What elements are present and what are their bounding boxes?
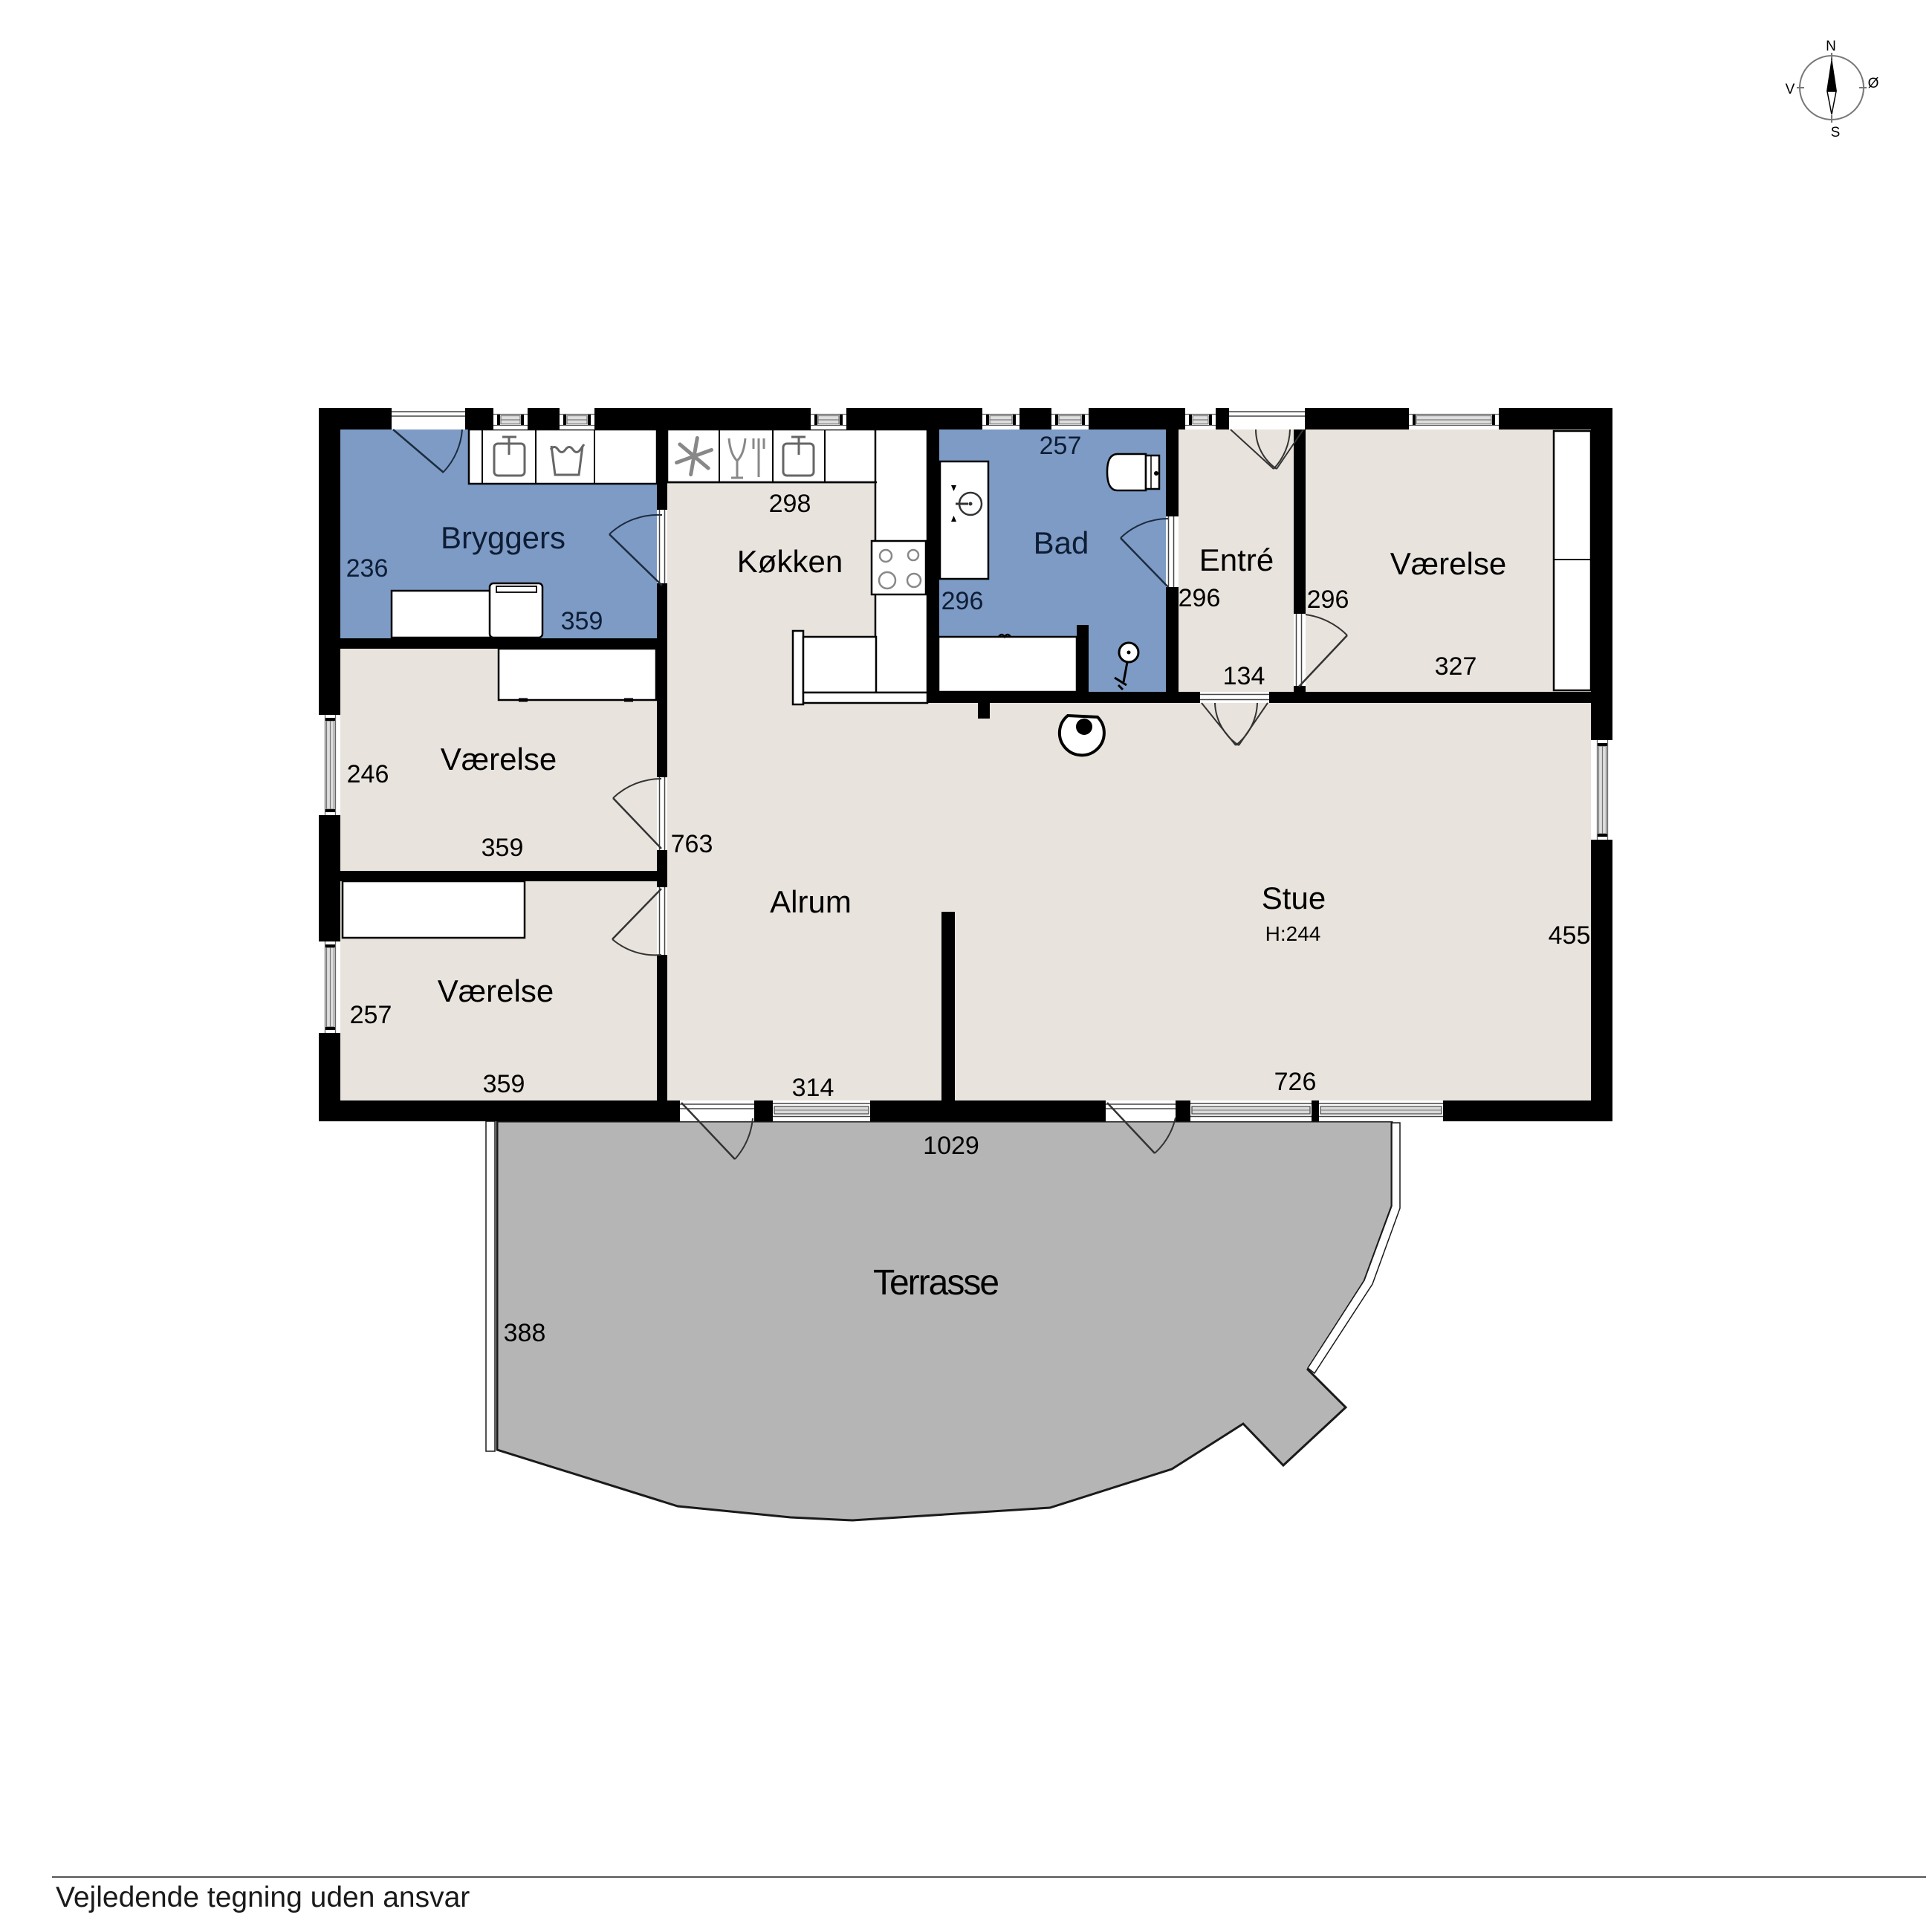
svg-text:Vejledende tegning uden ansvar: Vejledende tegning uden ansvar [56,1881,470,1913]
svg-text:455: 455 [1549,921,1591,950]
svg-text:Alrum: Alrum [770,884,852,919]
svg-text:Terrasse: Terrasse [873,1263,998,1303]
svg-text:359: 359 [561,607,603,635]
svg-text:236: 236 [346,554,389,583]
svg-text:296: 296 [1307,586,1349,614]
svg-text:388: 388 [504,1319,546,1347]
svg-text:Værelse: Værelse [438,973,554,1008]
svg-text:314: 314 [792,1074,834,1102]
svg-text:Værelse: Værelse [441,742,557,777]
svg-text:134: 134 [1223,662,1265,690]
svg-text:257: 257 [350,1001,392,1029]
svg-text:Værelse: Værelse [1390,546,1506,581]
svg-text:296: 296 [1179,584,1221,612]
svg-text:1029: 1029 [923,1132,979,1160]
svg-text:298: 298 [769,490,811,518]
svg-text:Entré: Entré [1199,542,1274,577]
svg-text:726: 726 [1274,1068,1317,1096]
svg-text:S: S [1831,125,1841,140]
svg-text:Stue: Stue [1262,881,1326,915]
svg-text:257: 257 [1040,432,1082,460]
svg-text:N: N [1826,39,1836,54]
svg-text:V: V [1786,82,1795,97]
svg-text:359: 359 [483,1070,525,1098]
svg-text:327: 327 [1435,652,1477,681]
svg-text:296: 296 [941,587,984,615]
svg-text:H:244: H:244 [1265,922,1321,945]
svg-text:Ø: Ø [1868,76,1879,91]
svg-text:246: 246 [347,760,389,788]
svg-text:763: 763 [671,830,713,858]
svg-text:Køkken: Køkken [737,544,843,579]
svg-text:Bad: Bad [1034,525,1089,560]
svg-text:Bryggers: Bryggers [441,520,565,555]
svg-text:359: 359 [482,834,524,862]
